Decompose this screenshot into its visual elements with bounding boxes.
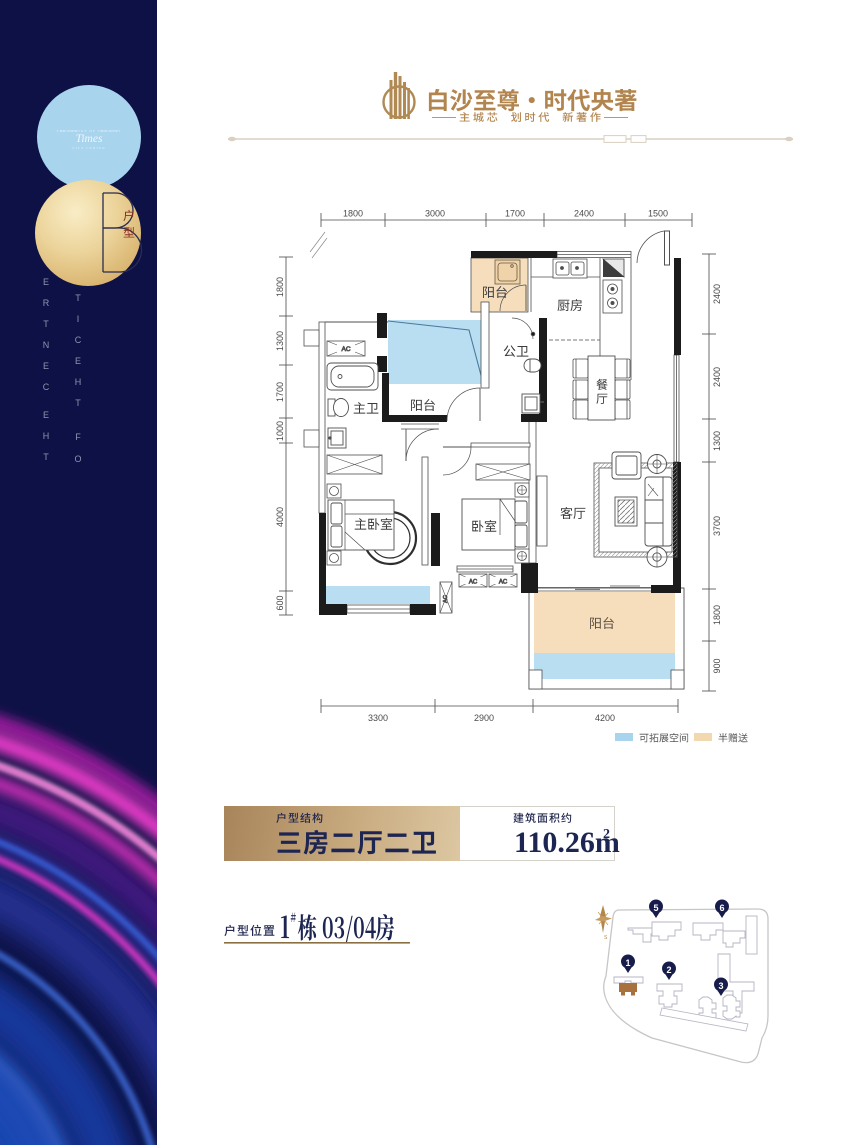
svg-text:2400: 2400 <box>712 284 722 304</box>
svg-text:T: T <box>75 398 81 408</box>
svg-text:E: E <box>43 361 49 371</box>
svg-text:2: 2 <box>666 965 671 975</box>
svg-text:Times: Times <box>76 133 103 145</box>
svg-text:C: C <box>43 382 50 392</box>
svg-text:T: T <box>43 452 49 462</box>
svg-text:600: 600 <box>275 595 285 610</box>
svg-text:AC: AC <box>341 346 350 353</box>
svg-text:1300: 1300 <box>275 331 285 351</box>
svg-text:2400: 2400 <box>712 367 722 387</box>
svg-text:N: N <box>43 340 50 350</box>
svg-text:3: 3 <box>718 981 723 991</box>
svg-text:F: F <box>75 432 81 442</box>
svg-text:1: 1 <box>625 958 630 968</box>
svg-text:1300: 1300 <box>712 431 722 451</box>
svg-text:R: R <box>43 298 50 308</box>
svg-text:1800: 1800 <box>275 277 285 297</box>
svg-text:1500: 1500 <box>648 209 668 219</box>
svg-text:5: 5 <box>653 903 658 913</box>
svg-text:E: E <box>43 277 49 287</box>
svg-text:AC: AC <box>443 595 449 603</box>
svg-text:S: S <box>604 935 608 941</box>
svg-text:4000: 4000 <box>275 507 285 527</box>
svg-text:3000: 3000 <box>425 209 445 219</box>
svg-text:H: H <box>43 431 50 441</box>
svg-text:O: O <box>74 454 81 464</box>
svg-text:E: E <box>75 356 81 366</box>
svg-text:2: 2 <box>603 827 610 842</box>
svg-text:AC: AC <box>499 580 508 586</box>
svg-text:3300: 3300 <box>368 713 388 723</box>
svg-text:H: H <box>75 377 82 387</box>
svg-text:3700: 3700 <box>712 516 722 536</box>
svg-text:1700: 1700 <box>505 209 525 219</box>
svg-text:900: 900 <box>712 658 722 673</box>
svg-text:E: E <box>43 410 49 420</box>
svg-text:I: I <box>77 314 80 324</box>
svg-text:1800: 1800 <box>343 209 363 219</box>
svg-text:T: T <box>75 293 81 303</box>
svg-text:C: C <box>75 335 82 345</box>
svg-text:AC: AC <box>469 580 478 586</box>
svg-text:T: T <box>43 319 49 329</box>
svg-text:2900: 2900 <box>474 713 494 723</box>
svg-text:CITY CENTER: CITY CENTER <box>72 146 106 150</box>
svg-text:6: 6 <box>719 903 724 913</box>
svg-text:1000: 1000 <box>275 421 285 441</box>
svg-text:2400: 2400 <box>574 209 594 219</box>
svg-text:1800: 1800 <box>712 605 722 625</box>
svg-text:1700: 1700 <box>275 382 285 402</box>
svg-text:4200: 4200 <box>595 713 615 723</box>
